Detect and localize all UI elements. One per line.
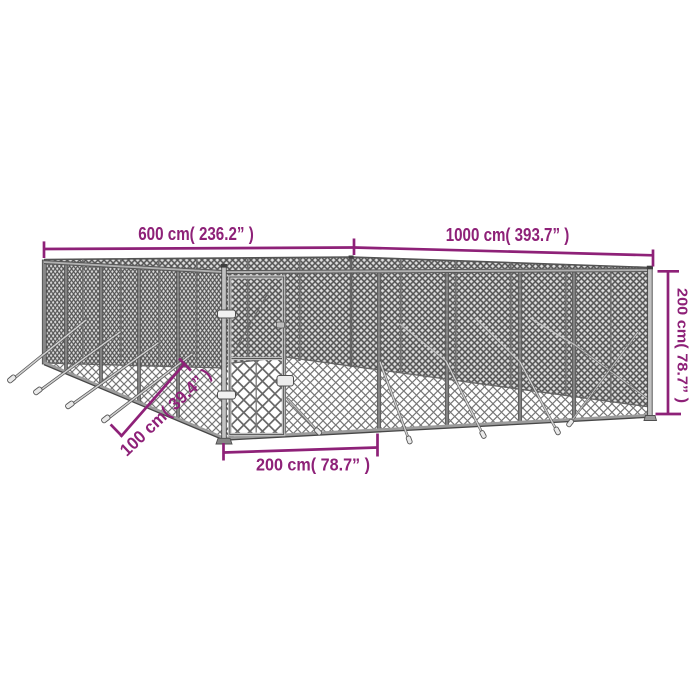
svg-text:600 cm( 236.2” ): 600 cm( 236.2” )	[138, 223, 254, 244]
svg-text:200 cm( 78.7” ): 200 cm( 78.7” )	[256, 455, 370, 475]
svg-text:1000 cm( 393.7” ): 1000 cm( 393.7” )	[446, 224, 570, 245]
svg-text:200 cm( 78.7” ): 200 cm( 78.7” )	[674, 288, 691, 403]
